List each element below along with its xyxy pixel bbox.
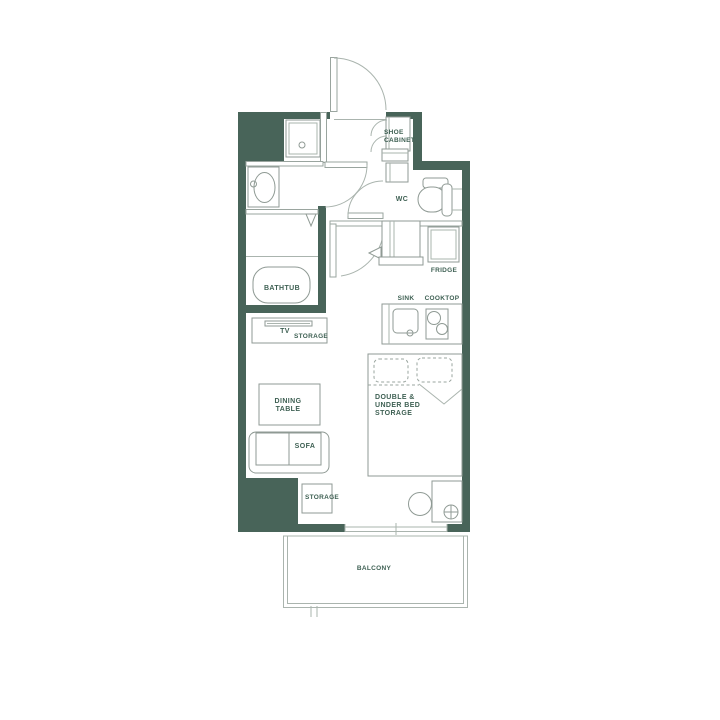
- toilet: [418, 178, 462, 216]
- kitchen-counter: [382, 304, 462, 344]
- entrance-door: [331, 58, 387, 112]
- label-dining-2: TABLE: [276, 406, 301, 413]
- label-bathtub: BATHTUB: [264, 285, 300, 292]
- entry-shelf-upper: [382, 149, 408, 161]
- label-bed-1: DOUBLE &: [375, 394, 415, 401]
- label-bed-3: STORAGE: [375, 410, 412, 417]
- tall-cabinet: [379, 221, 423, 265]
- desk-area: [409, 481, 463, 522]
- entrance-door-swing: [334, 58, 386, 110]
- label-wc: WC: [396, 196, 408, 203]
- entry-shelf-lower: [386, 163, 408, 182]
- vanity-door-swing: [325, 165, 367, 207]
- washing-machine-pan: [286, 120, 320, 157]
- label-fridge: FRIDGE: [431, 267, 458, 274]
- label-balcony: BALCONY: [357, 565, 392, 572]
- washing-machine: [286, 120, 320, 157]
- desk: [432, 481, 462, 522]
- label-bed-2: UNDER BED: [375, 402, 420, 409]
- vanity-door: [325, 162, 367, 207]
- wall-bottom-strip-left: [298, 524, 345, 532]
- wc-door-leaf: [348, 213, 383, 219]
- partition-bathroom-top: [246, 210, 318, 215]
- stool: [409, 493, 432, 516]
- sofa: [249, 432, 329, 473]
- fridge: [428, 227, 459, 262]
- label-tv: TV: [280, 328, 290, 335]
- wall-bathroom-bottom: [238, 305, 326, 313]
- wall-bottom-left-block: [238, 478, 298, 532]
- wall-right-outer: [462, 161, 470, 532]
- partition-entrance: [321, 113, 327, 163]
- kitchen-door-leaf: [330, 224, 336, 277]
- wall-wc-top: [413, 161, 470, 170]
- balcony-window: [345, 523, 447, 535]
- label-sink: SINK: [398, 295, 415, 302]
- tall-cabinet-box: [382, 221, 420, 257]
- fridge-outer: [428, 227, 459, 262]
- wall-bathroom-right: [318, 206, 326, 313]
- wall-left-outer: [238, 163, 246, 478]
- label-cooktop: COOKTOP: [425, 295, 460, 302]
- wc-door-swing: [348, 181, 383, 216]
- bathroom-door-mark: [306, 214, 316, 226]
- label-shoe-cabinet-2: CABINET: [384, 137, 415, 144]
- label-sofa: SOFA: [295, 443, 316, 450]
- label-dining-1: DINING: [275, 398, 302, 405]
- wc-door: [348, 181, 383, 219]
- wall-top-left-block: [238, 112, 284, 163]
- washbasin: [248, 167, 279, 207]
- entrance-door-leaf: [331, 58, 338, 112]
- floor-plan: SHOE CABINET WC FRIDGE SINK COOKTOP BATH…: [0, 0, 720, 720]
- bathroom: [246, 257, 318, 304]
- vanity-door-leaf: [325, 162, 367, 168]
- label-storage: STORAGE: [305, 494, 339, 501]
- partition-vanity-top: [246, 162, 323, 167]
- floor-plan-page: SHOE CABINET WC FRIDGE SINK COOKTOP BATH…: [0, 0, 720, 720]
- shoe-cabinet: [371, 117, 410, 182]
- label-tv-storage: STORAGE: [294, 333, 328, 340]
- balcony: [283, 536, 468, 617]
- label-shoe-cabinet-1: SHOE: [384, 129, 404, 136]
- wall-bottom-strip-right: [447, 524, 470, 532]
- tall-cabinet-base: [379, 257, 423, 265]
- toilet-seat: [442, 184, 452, 216]
